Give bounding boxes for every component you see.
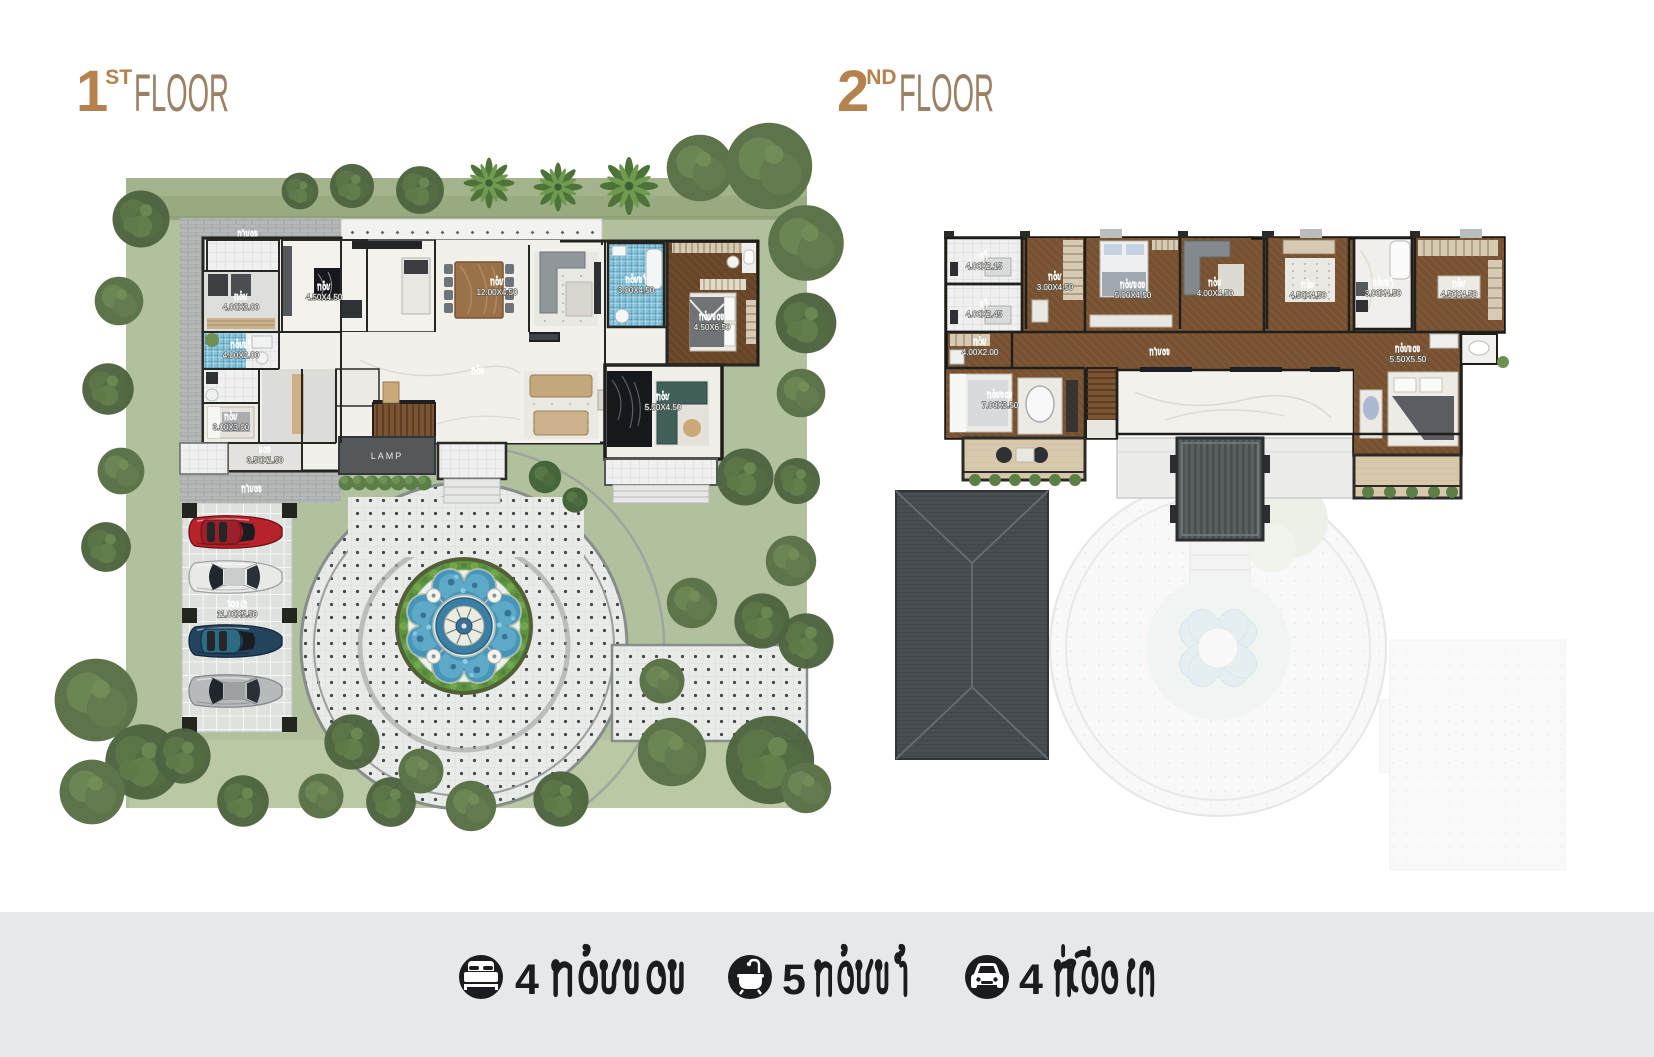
svg-text:4.00X2.00: 4.00X2.00 <box>223 351 260 360</box>
svg-text:3.00X4.50: 3.00X4.50 <box>1365 289 1402 298</box>
svg-text:4: 4 <box>515 956 539 1004</box>
svg-text:12.00X4.50: 12.00X4.50 <box>477 288 518 297</box>
svg-text:4.00X3.00: 4.00X3.00 <box>223 303 260 312</box>
svg-text:5.50X5.50: 5.50X5.50 <box>1390 355 1427 364</box>
svg-text:4.00X2.15: 4.00X2.15 <box>966 262 1003 271</box>
svg-text:3.50X1.50: 3.50X1.50 <box>247 456 284 465</box>
svg-text:5: 5 <box>782 956 806 1004</box>
svg-text:LAMP: LAMP <box>371 451 404 461</box>
svg-text:4.50X4.50: 4.50X4.50 <box>306 293 343 302</box>
svg-text:4.00X2.45: 4.00X2.45 <box>966 310 1003 319</box>
svg-text:4: 4 <box>1019 956 1043 1004</box>
svg-text:4.00X2.00: 4.00X2.00 <box>962 348 999 357</box>
svg-text:4.00X4.50: 4.00X4.50 <box>1197 289 1234 298</box>
svg-text:11.00X5.50: 11.00X5.50 <box>217 610 258 619</box>
svg-text:3.00X4.50: 3.00X4.50 <box>1037 283 1074 292</box>
svg-text:3.00X4.50: 3.00X4.50 <box>618 286 655 295</box>
svg-text:4.50X6.50: 4.50X6.50 <box>694 323 731 332</box>
svg-text:3.00X3.00: 3.00X3.00 <box>213 423 250 432</box>
svg-text:4.50X4.50: 4.50X4.50 <box>1290 291 1327 300</box>
svg-text:5.50X4.50: 5.50X4.50 <box>645 403 682 412</box>
svg-text:5.00X4.50: 5.00X4.50 <box>1115 291 1152 300</box>
svg-text:7.00X3.50: 7.00X3.50 <box>982 401 1019 410</box>
svg-text:4.50X4.50: 4.50X4.50 <box>1441 290 1478 299</box>
